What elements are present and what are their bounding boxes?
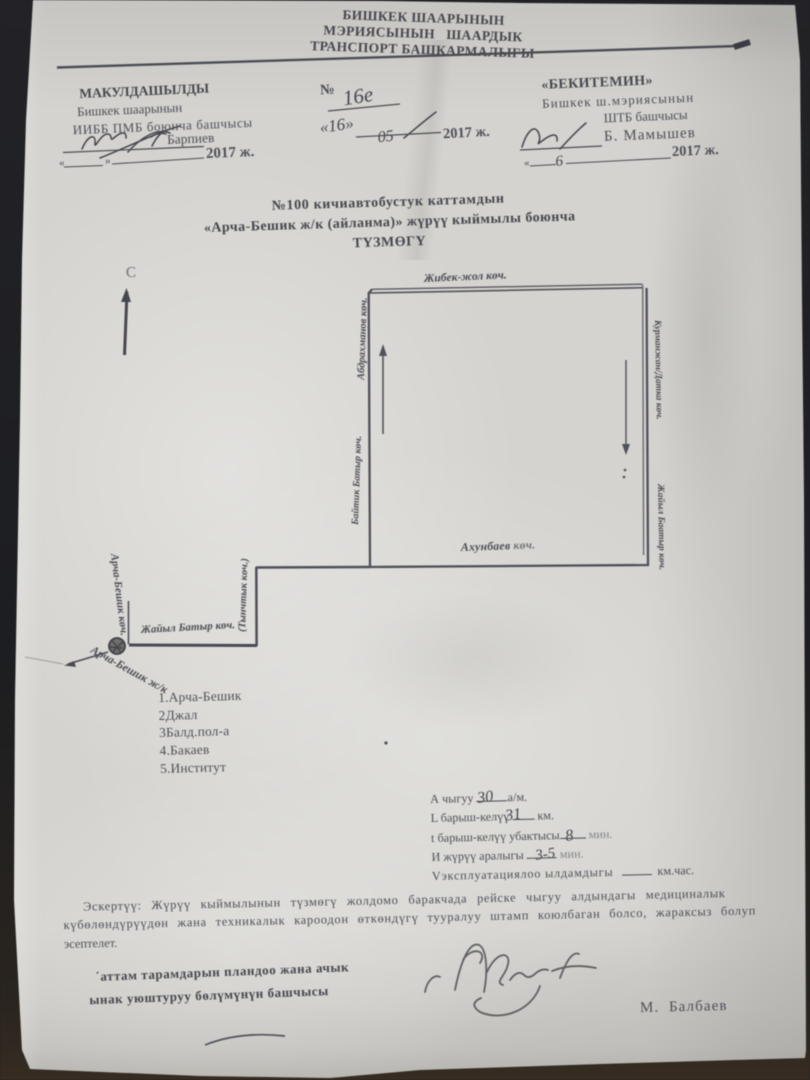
- svg-text:«16»: «16»: [318, 113, 354, 137]
- svg-text:05: 05: [377, 128, 395, 147]
- svg-text:Ахунбаев көч.: Ахунбаев көч.: [460, 537, 536, 554]
- svg-text:Абдрахманов көч.: Абдрахманов көч.: [356, 297, 370, 381]
- svg-text:16е: 16е: [341, 82, 375, 110]
- svg-text:Байтик Батыр көч.: Байтик Батыр көч.: [350, 436, 364, 527]
- svg-text:Курманжан/Датка көч.: Курманжан/Датка көч.: [652, 319, 664, 420]
- svg-text:Жибек-жол көч.: Жибек-жол көч.: [423, 269, 507, 285]
- svg-text:Жайыл Баатыр көч.: Жайыл Баатыр көч.: [655, 483, 668, 570]
- svg-text:Арча-Бешик көч.: Арча-Бешик көч.: [108, 552, 130, 637]
- svg-text:(Тынчтык көч.): (Тынчтык көч.): [237, 558, 251, 632]
- svg-text:6: 6: [555, 153, 565, 170]
- svg-text:Жайыл Батыр көч.: Жайыл Батыр көч.: [140, 619, 236, 636]
